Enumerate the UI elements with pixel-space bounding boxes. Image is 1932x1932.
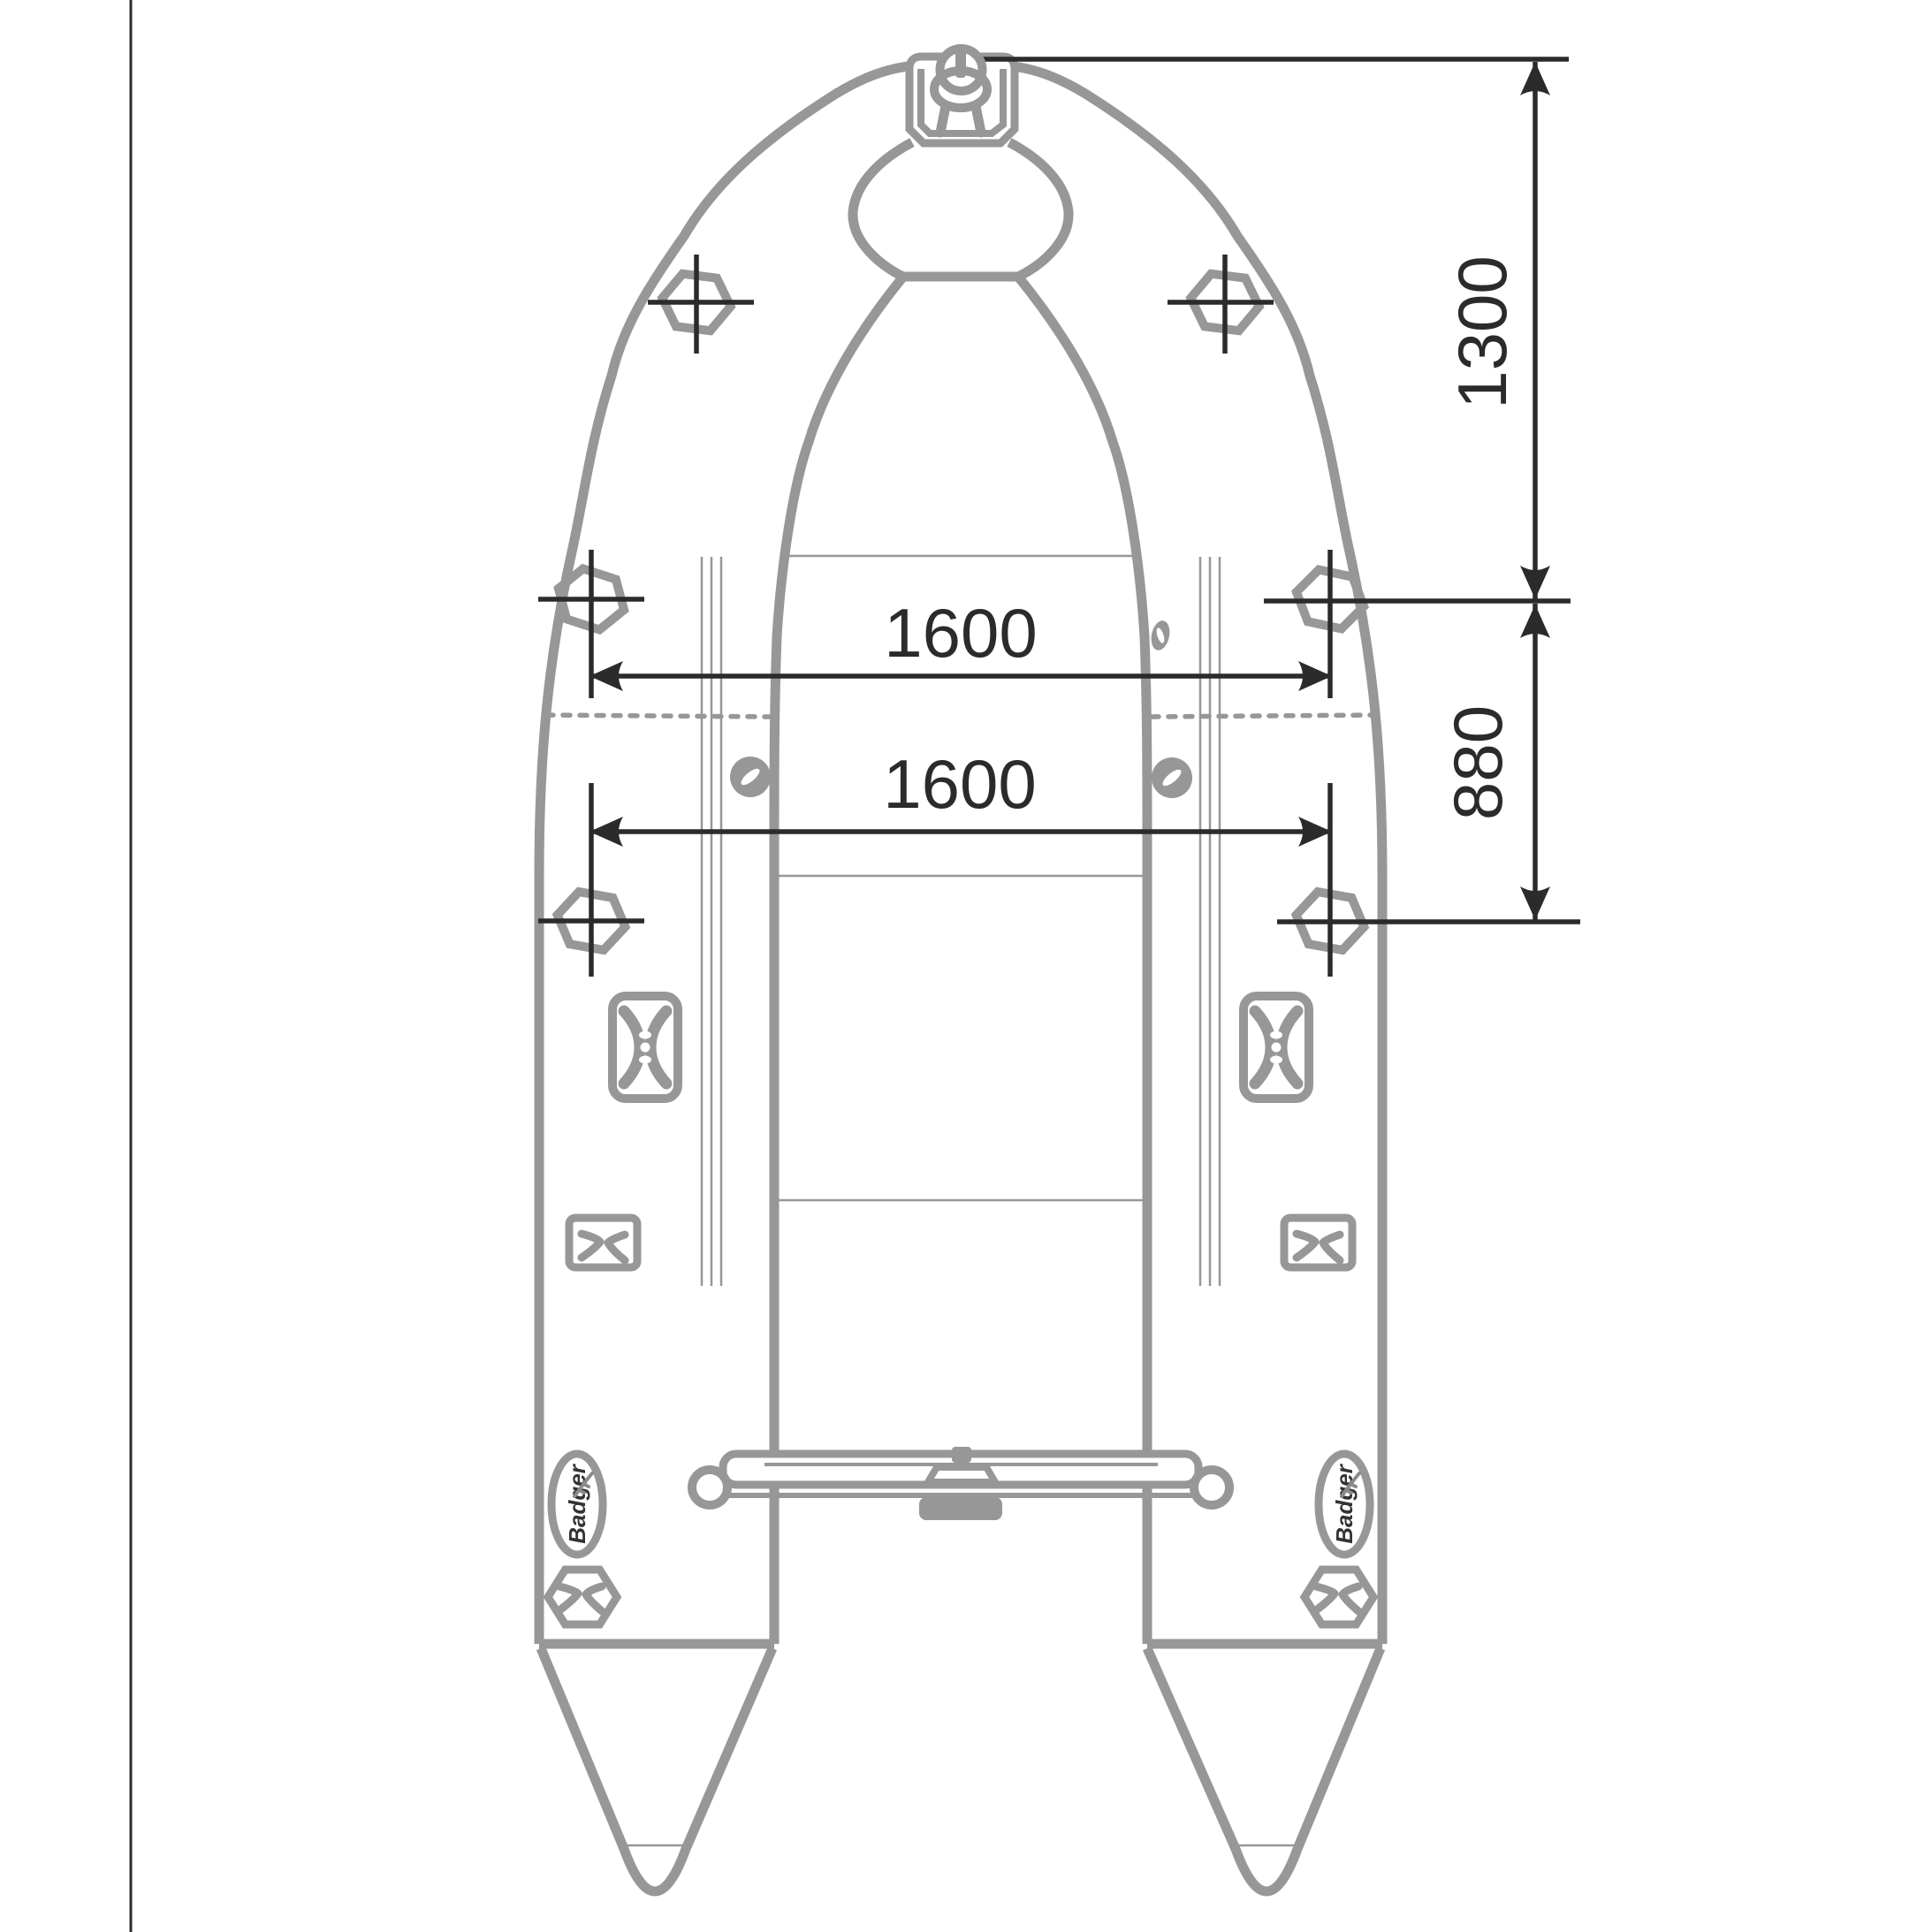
- svg-text:1300: 1300: [1443, 255, 1521, 409]
- svg-text:Badger: Badger: [564, 1463, 590, 1543]
- svg-text:880: 880: [1439, 705, 1517, 820]
- svg-text:Badger: Badger: [1331, 1463, 1358, 1543]
- svg-text:1600: 1600: [884, 594, 1038, 672]
- svg-text:1600: 1600: [883, 745, 1037, 823]
